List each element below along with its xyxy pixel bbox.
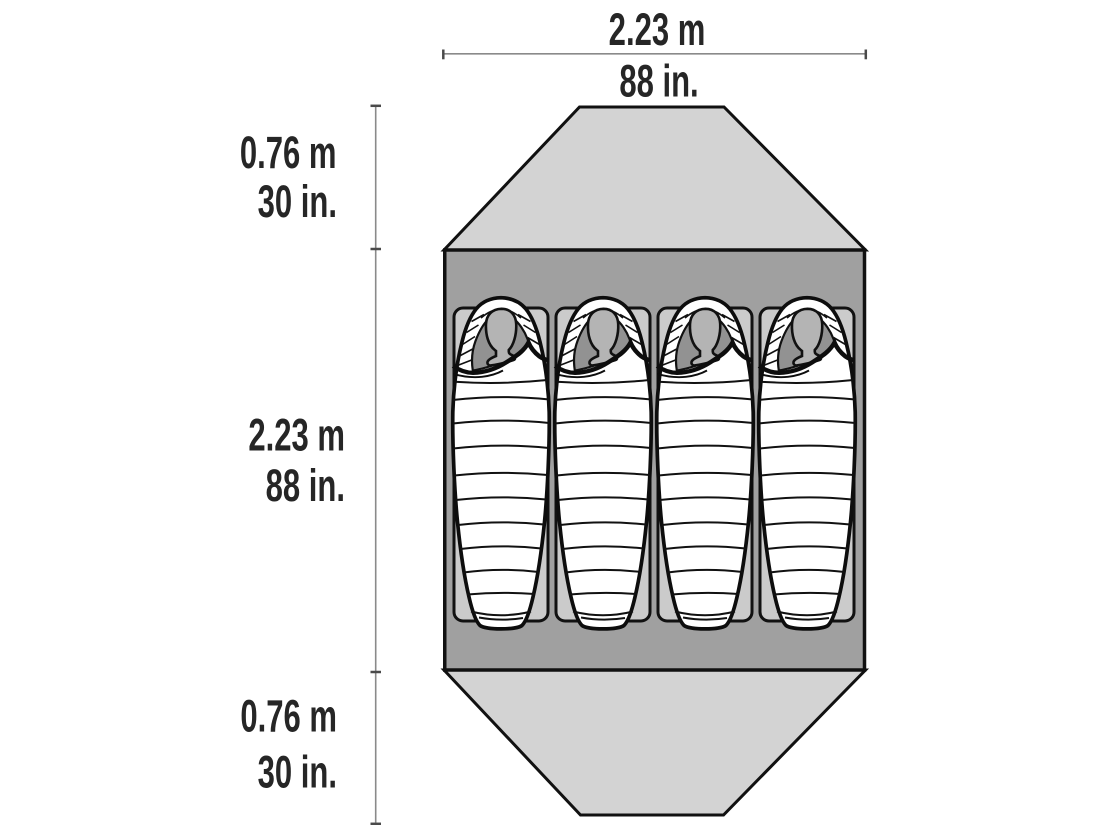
svg-text:2.23 m: 2.23 m bbox=[609, 5, 706, 55]
svg-text:88 in.: 88 in. bbox=[619, 57, 698, 107]
svg-text:30 in.: 30 in. bbox=[258, 177, 337, 227]
svg-text:30 in.: 30 in. bbox=[258, 748, 337, 798]
svg-text:88 in.: 88 in. bbox=[266, 461, 345, 511]
svg-text:2.23 m: 2.23 m bbox=[248, 411, 345, 461]
svg-text:0.76 m: 0.76 m bbox=[240, 128, 337, 178]
svg-text:0.76 m: 0.76 m bbox=[240, 692, 337, 742]
